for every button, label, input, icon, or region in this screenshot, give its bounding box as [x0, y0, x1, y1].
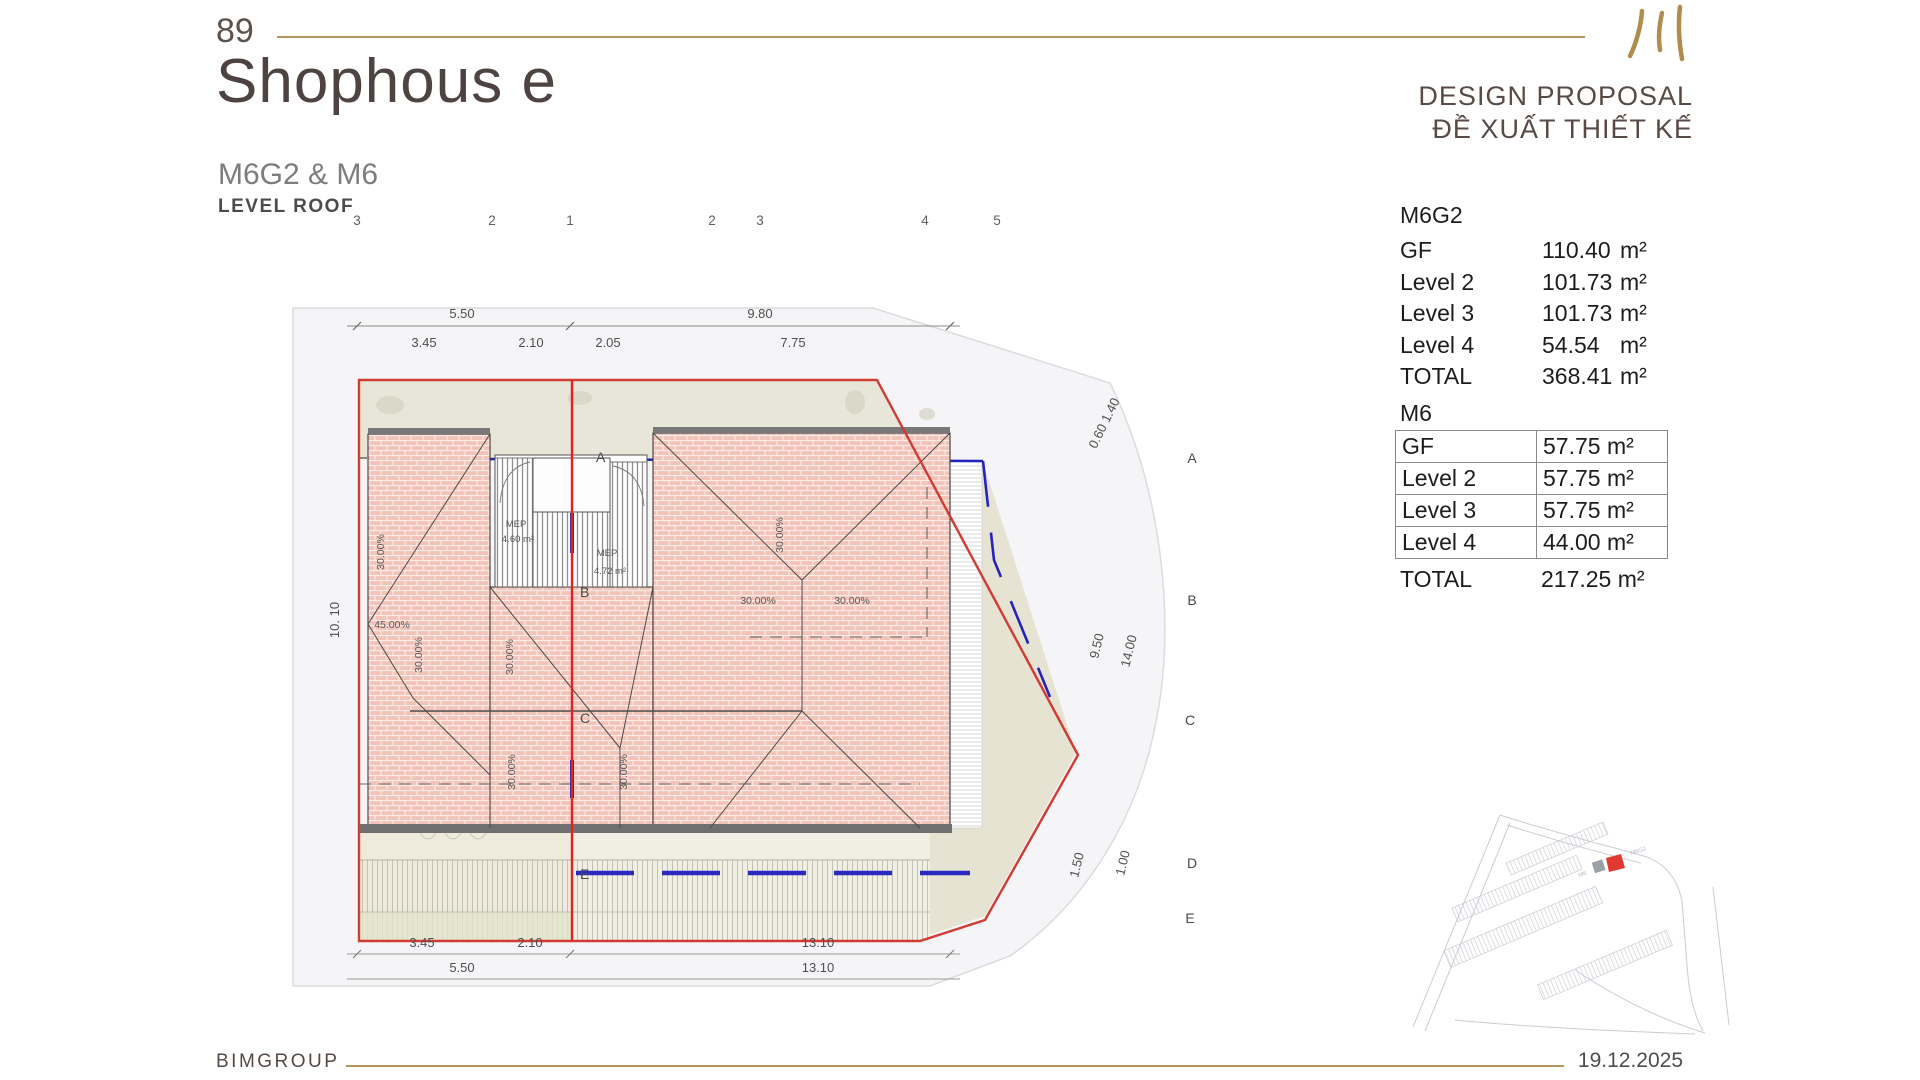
table-total-row: TOTAL368.41m² — [1400, 361, 1647, 393]
grid-number: 3 — [353, 213, 361, 228]
bottom-terrace-left — [359, 833, 572, 941]
grid-letters-right: A B C D E — [1185, 450, 1197, 926]
grid-letter: D — [1187, 855, 1197, 871]
table-row: Level 4 44.00 m² — [1396, 527, 1668, 559]
room-area-label: 4.60 m² — [502, 534, 534, 545]
table-row: Level 3101.73m² — [1400, 298, 1647, 330]
dim-label: 13.10 — [802, 935, 835, 950]
dim-label: 13.10 — [802, 960, 835, 975]
brand-logo-strokes-icon — [1626, 4, 1690, 62]
proposal-heading: DESIGN PROPOSAL ĐỀ XUẤT THIẾT KẾ — [1418, 80, 1693, 146]
grid-number: 4 — [921, 213, 929, 228]
slope-label: 30.00% — [504, 639, 516, 675]
proposal-line-vi: ĐỀ XUẤT THIẾT KẾ — [1418, 113, 1693, 146]
grid-number: 2 — [488, 213, 496, 228]
eave-band — [368, 428, 490, 434]
table-row: Level 3 57.75 m² — [1396, 495, 1668, 527]
dim-label: 9.80 — [747, 306, 772, 321]
right-hatched-strip-lines — [950, 462, 982, 828]
table-row: GF 57.75 m² — [1396, 431, 1668, 463]
dim-label: 2.10 — [517, 935, 542, 950]
minimap-label: M6 — [1578, 870, 1588, 878]
room-label: MEP — [597, 548, 618, 559]
room-area-label: 4.72 m² — [594, 566, 626, 577]
grid-number: 3 — [756, 213, 764, 228]
unit-subtitle: M6G2 & M6 — [218, 158, 378, 192]
key-plan-minimap: M6G2 M6 — [1395, 795, 1740, 1035]
slope-label: 30.00% — [774, 517, 786, 553]
grid-number: 1 — [566, 213, 574, 228]
table-title: M6 — [1400, 400, 1668, 426]
grid-letter: C — [580, 710, 590, 726]
slope-label: 45.00% — [374, 619, 410, 631]
table-row: Level 2 57.75 m² — [1396, 463, 1668, 495]
dim-label: 3.45 — [409, 935, 434, 950]
slope-label: 30.00% — [506, 754, 518, 790]
dim-label: 1.00 — [1112, 849, 1133, 877]
dim-label: 5.50 — [449, 306, 474, 321]
bordered-area-table: GF 57.75 m² Level 2 57.75 m² Level 3 57.… — [1395, 430, 1668, 559]
slope-label: 30.00% — [834, 595, 870, 607]
minimap-marker — [1606, 854, 1625, 872]
table-title: M6G2 — [1400, 202, 1647, 228]
grid-number: 2 — [708, 213, 716, 228]
slope-label: 30.00% — [413, 637, 425, 673]
minimap-label: M6G2 — [1630, 846, 1648, 857]
grid-number: 5 — [993, 213, 1001, 228]
date-label: 19.12.2025 — [1578, 1049, 1683, 1073]
header-divider-line — [277, 36, 1585, 38]
dim-label: 2.05 — [595, 335, 620, 350]
slope-label: 30.00% — [740, 595, 776, 607]
left-roof — [368, 434, 490, 828]
dim-label: 2.10 — [518, 335, 543, 350]
footer-divider-line — [346, 1065, 1564, 1067]
grid-numbers-top: 3 2 1 2 3 4 5 — [353, 213, 1001, 228]
grid-letter: E — [580, 866, 589, 882]
slope-label: 30.00% — [375, 534, 387, 570]
table-total-row: TOTAL217.25 m² — [1395, 564, 1668, 594]
dim-label: 5.50 — [449, 960, 474, 975]
dim-label: 7.75 — [780, 335, 805, 350]
slope-label: 30.00% — [618, 754, 630, 790]
company-name: BIMGROUP — [216, 1051, 339, 1073]
minimap-adjacent-lot — [1592, 859, 1606, 873]
grid-letter: A — [596, 449, 606, 465]
roof-plan-drawing: 30.00% 45.00% 30.00% 30.00% 30.00% 30.00… — [270, 200, 1240, 1000]
grid-letter: E — [1185, 910, 1194, 926]
table-row: GF110.40m² — [1400, 235, 1647, 267]
roof-areas — [359, 427, 952, 833]
table-row: Level 454.54m² — [1400, 330, 1647, 362]
proposal-line-en: DESIGN PROPOSAL — [1418, 80, 1693, 113]
bottom-terrace-right — [572, 833, 930, 941]
dim-label: 3.45 — [411, 335, 436, 350]
table-row: Level 2101.73m² — [1400, 267, 1647, 299]
dim-label-left: 10. 10 — [327, 602, 342, 638]
grid-letter: C — [1185, 712, 1195, 728]
area-table-m6: M6 GF 57.75 m² Level 2 57.75 m² Level 3 … — [1395, 400, 1668, 594]
eave-band — [359, 824, 952, 833]
grid-letter: A — [1187, 450, 1197, 466]
area-table-m6g2: M6G2 GF110.40m² Level 2101.73m² Level 31… — [1400, 202, 1647, 393]
grid-letter: B — [580, 584, 589, 600]
slide-page: 89 Shophous e M6G2 & M6 LEVEL ROOF DESIG… — [0, 0, 1920, 1080]
grid-letter: B — [1187, 592, 1196, 608]
page-title: Shophous e — [216, 46, 557, 117]
room-label: MEP — [506, 519, 527, 530]
